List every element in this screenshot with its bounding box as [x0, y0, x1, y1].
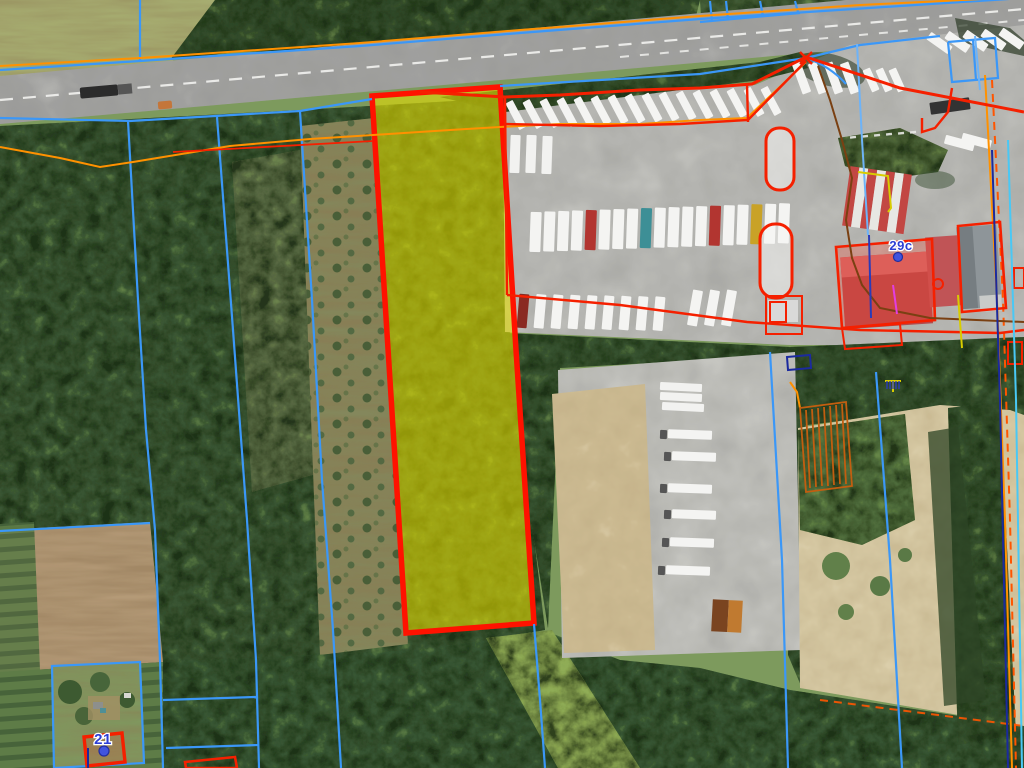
- truck: [541, 136, 552, 174]
- truck: [612, 209, 624, 249]
- truck: [626, 208, 638, 248]
- truck: [670, 537, 714, 548]
- truck: [525, 135, 536, 173]
- truck: [662, 538, 669, 547]
- truck: [666, 565, 710, 576]
- truck: [654, 207, 666, 247]
- truck: [681, 207, 693, 247]
- truck: [557, 211, 569, 251]
- truck: [571, 210, 583, 250]
- truck: [598, 209, 610, 249]
- truck: [660, 430, 667, 439]
- truck: [664, 510, 671, 519]
- truck: [672, 509, 716, 520]
- truck: [667, 207, 679, 247]
- truck: [658, 566, 665, 575]
- truck: [668, 429, 712, 440]
- map-viewport[interactable]: 29c 21: [0, 0, 1024, 768]
- address-label-21: 21: [94, 731, 112, 748]
- truck: [585, 210, 597, 250]
- truck: [640, 208, 652, 248]
- truck: [660, 484, 667, 493]
- map-canvas[interactable]: 29c 21: [0, 0, 1024, 768]
- truck: [709, 206, 721, 246]
- truck: [664, 452, 671, 461]
- truck: [543, 211, 555, 251]
- address-marker-dot-29c[interactable]: [894, 253, 903, 262]
- truck: [723, 205, 735, 245]
- truck: [529, 212, 541, 252]
- address-label-29c: 29c: [889, 238, 912, 253]
- truck: [509, 135, 520, 173]
- truck: [668, 483, 712, 494]
- truck: [695, 206, 707, 246]
- truck: [736, 205, 748, 245]
- truck: [672, 451, 716, 462]
- address-marker-dot-21[interactable]: [99, 746, 109, 756]
